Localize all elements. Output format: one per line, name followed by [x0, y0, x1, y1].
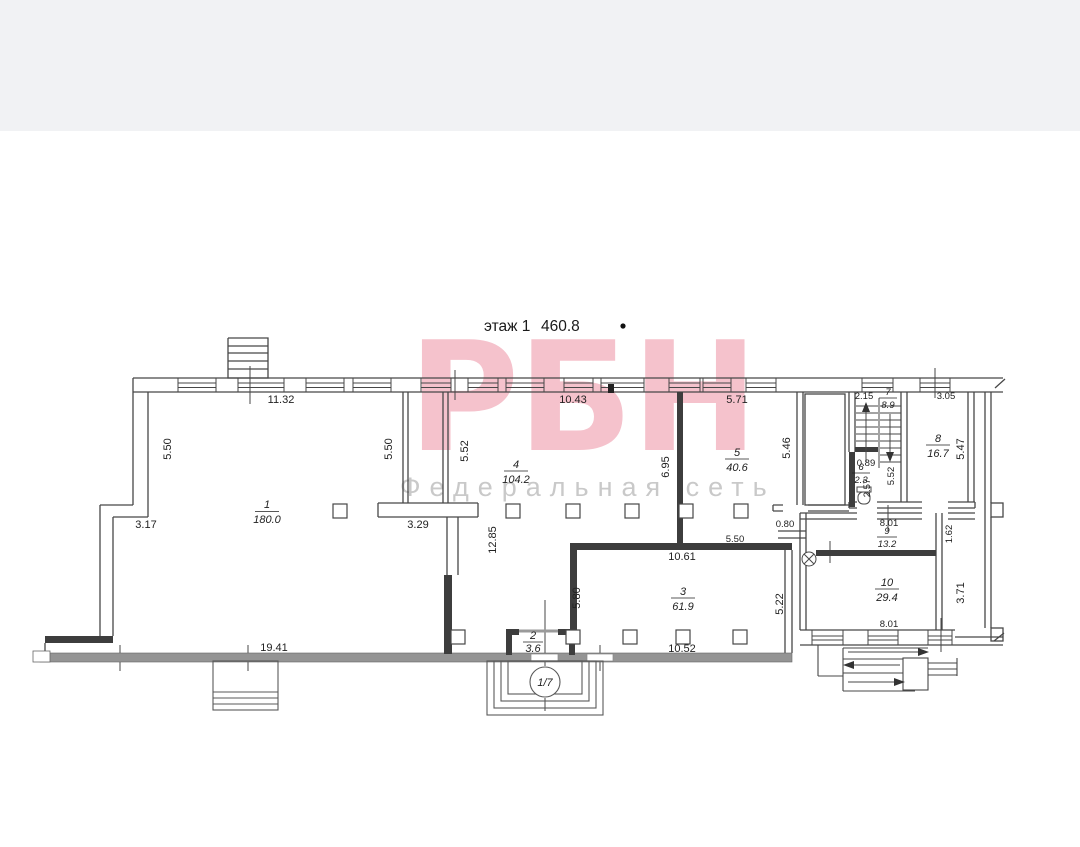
floor-plan-svg: этаж 1 460.8 [0, 0, 1080, 847]
dim-room3-left: 5.80 [571, 587, 583, 608]
dim-room10-width: 8.01 [880, 619, 899, 630]
title-dot [620, 323, 625, 328]
plan-title: этаж 1 460.8 [484, 318, 626, 335]
dim-gap-width: 1.62 [944, 525, 955, 544]
left-stairs [213, 661, 278, 710]
rear-ramp [818, 645, 957, 691]
room-1-area: 180.0 [253, 514, 281, 526]
dim-top-room1: 11.32 [268, 394, 295, 406]
room-5-number: 5 [734, 447, 741, 459]
room-7-number: 7 [885, 387, 891, 398]
dim-right-room5: 5.46 [781, 437, 793, 458]
wall-break-mark [608, 384, 614, 393]
dim-bottom-corridor: 3.29 [407, 519, 428, 531]
dim-room3-width: 10.61 [668, 551, 696, 563]
room-10-number: 10 [881, 577, 894, 589]
dim-top-room8: 3.05 [937, 391, 956, 402]
room-1-number: 1 [264, 499, 270, 511]
windows-bottom [812, 630, 952, 645]
dim-room10-right: 3.71 [955, 582, 967, 603]
room-10-area: 29.4 [875, 592, 897, 604]
room-3-area: 61.9 [672, 601, 693, 613]
dim-room3-right: 5.22 [774, 593, 786, 614]
dim-room3-top: 5.50 [726, 534, 745, 545]
room-8-area: 16.7 [927, 448, 949, 460]
dim-room9-width: 8.01 [880, 518, 899, 529]
dimension-labels-vertical: 5.50 5.50 5.52 6.95 5.46 5.47 2.57 5.52 … [162, 437, 967, 614]
room-4-number: 4 [513, 459, 519, 471]
floor-label: этаж 1 [484, 318, 530, 335]
floor-plan-page: РБН Федеральная сеть этаж 1 460.8 [0, 0, 1080, 847]
dim-pass-width: 0.80 [776, 519, 795, 530]
windows-top [178, 378, 950, 392]
room-3-number: 3 [680, 586, 687, 598]
total-area-label: 460.8 [541, 318, 580, 335]
dim-right-room4: 6.95 [660, 456, 672, 477]
column-circle-symbol [802, 552, 816, 566]
dim-bottom-left: 19.41 [260, 642, 288, 654]
dim-top-room4: 10.43 [559, 394, 587, 406]
dim-left-room1: 5.50 [162, 438, 174, 459]
room-4-area: 104.2 [502, 474, 530, 486]
dim-left-room4: 5.52 [459, 440, 471, 461]
room-8-number: 8 [935, 433, 942, 445]
dim-room3-bottom: 10.52 [668, 643, 696, 655]
dim-top-room5: 5.71 [726, 394, 747, 406]
room-label-fraction-lines [255, 398, 950, 642]
room-9-area: 13.2 [878, 539, 897, 550]
dim-bottom-room1: 3.17 [135, 519, 156, 531]
dim-wc-height: 2.57 [862, 479, 873, 498]
dim-right-room1: 5.50 [383, 438, 395, 459]
room-5-area: 40.6 [726, 462, 748, 474]
entrance-marker: 1/7 [537, 677, 553, 689]
room-2-number: 2 [529, 630, 536, 642]
dim-stair-landing: 0.89 [857, 458, 876, 469]
dim-right-room8: 5.47 [955, 438, 967, 459]
room-2-area: 3.6 [525, 643, 541, 655]
dim-stair-height: 5.52 [886, 467, 897, 486]
columns [333, 504, 748, 644]
room-7-area: 8.9 [881, 400, 895, 411]
dim-top-stair: 2.15 [855, 391, 874, 402]
dim-mid-height: 12.85 [487, 526, 499, 554]
